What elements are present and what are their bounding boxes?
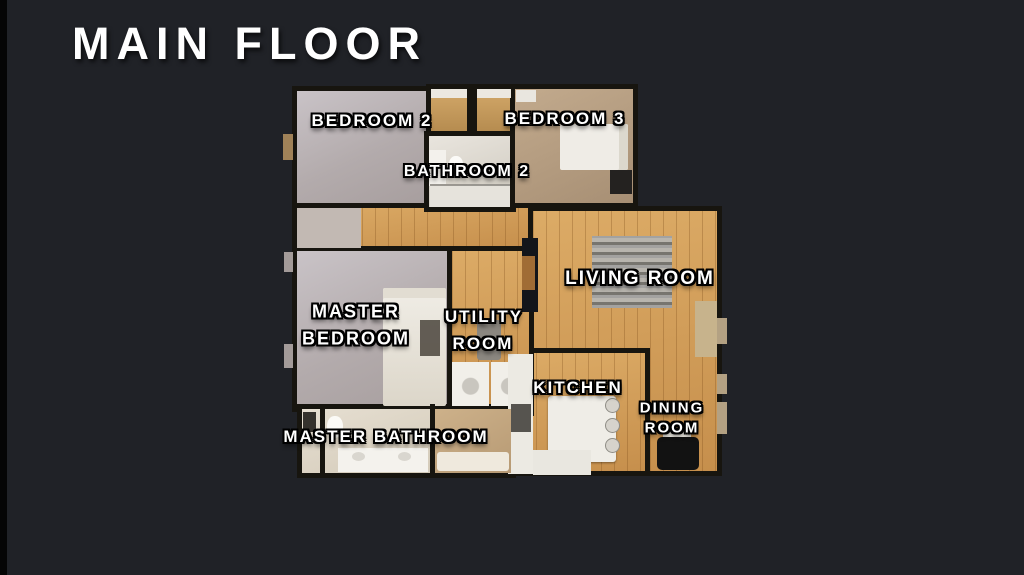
utility-room-label-line2: ROOM [453,334,514,354]
master-bedroom-label-line1: MASTER [312,302,400,323]
right-wall-bump-1 [717,318,727,344]
master-bathroom-vanity [338,448,428,472]
utility-washer [452,362,489,406]
left-wall-bump-1 [283,134,293,160]
left-wall-bump-2 [284,252,293,272]
left-edge-strip [0,0,7,575]
kitchen-stool-2 [605,418,620,433]
left-wall-bump-3 [284,344,293,368]
bathroom2-shower [430,184,510,207]
bedroom3-nightstand [610,170,632,194]
master-bathroom-label: MASTER BATHROOM [283,427,488,447]
dining-room-label-line2: ROOM [645,420,700,437]
hall-carpet [297,208,361,248]
living-room-label: LIVING ROOM [565,268,715,290]
dining-table [657,437,699,470]
kitchen-label: KITCHEN [533,378,623,398]
kitchen-stool-3 [605,438,620,453]
bedroom3-label: BEDROOM 3 [505,109,626,129]
main-floor-plan-image: MAIN FLOOR BEDROO [0,0,1024,575]
bedroom2-label: BEDROOM 2 [312,111,433,131]
bedroom3-dresser [516,90,536,102]
utility-room-label-line1: UTILITY [445,307,523,327]
kitchen-fridge [511,404,531,432]
closet-shelf-a [431,89,467,98]
room-bedroom-2 [292,86,434,208]
kitchen-stool-1 [605,398,620,413]
dining-room-label-line1: DINING [640,400,705,417]
bedroom3-bed [560,124,628,170]
right-wall-bump-2 [717,374,727,394]
master-bathroom-sink-2 [398,452,411,461]
master-bedroom-label-line2: BEDROOM [302,329,410,350]
master-bedroom-rug [420,320,440,356]
closet-shelf-b [477,89,511,98]
entry-mat [695,301,717,357]
page-title: MAIN FLOOR [72,18,427,70]
master-bathroom-tub [437,452,509,471]
bathroom2-label: BATHROOM 2 [404,163,530,181]
kitchen-range [533,450,591,475]
right-wall-bump-3 [717,402,727,434]
entry-door [522,256,535,290]
master-bathroom-sink-1 [352,452,365,461]
